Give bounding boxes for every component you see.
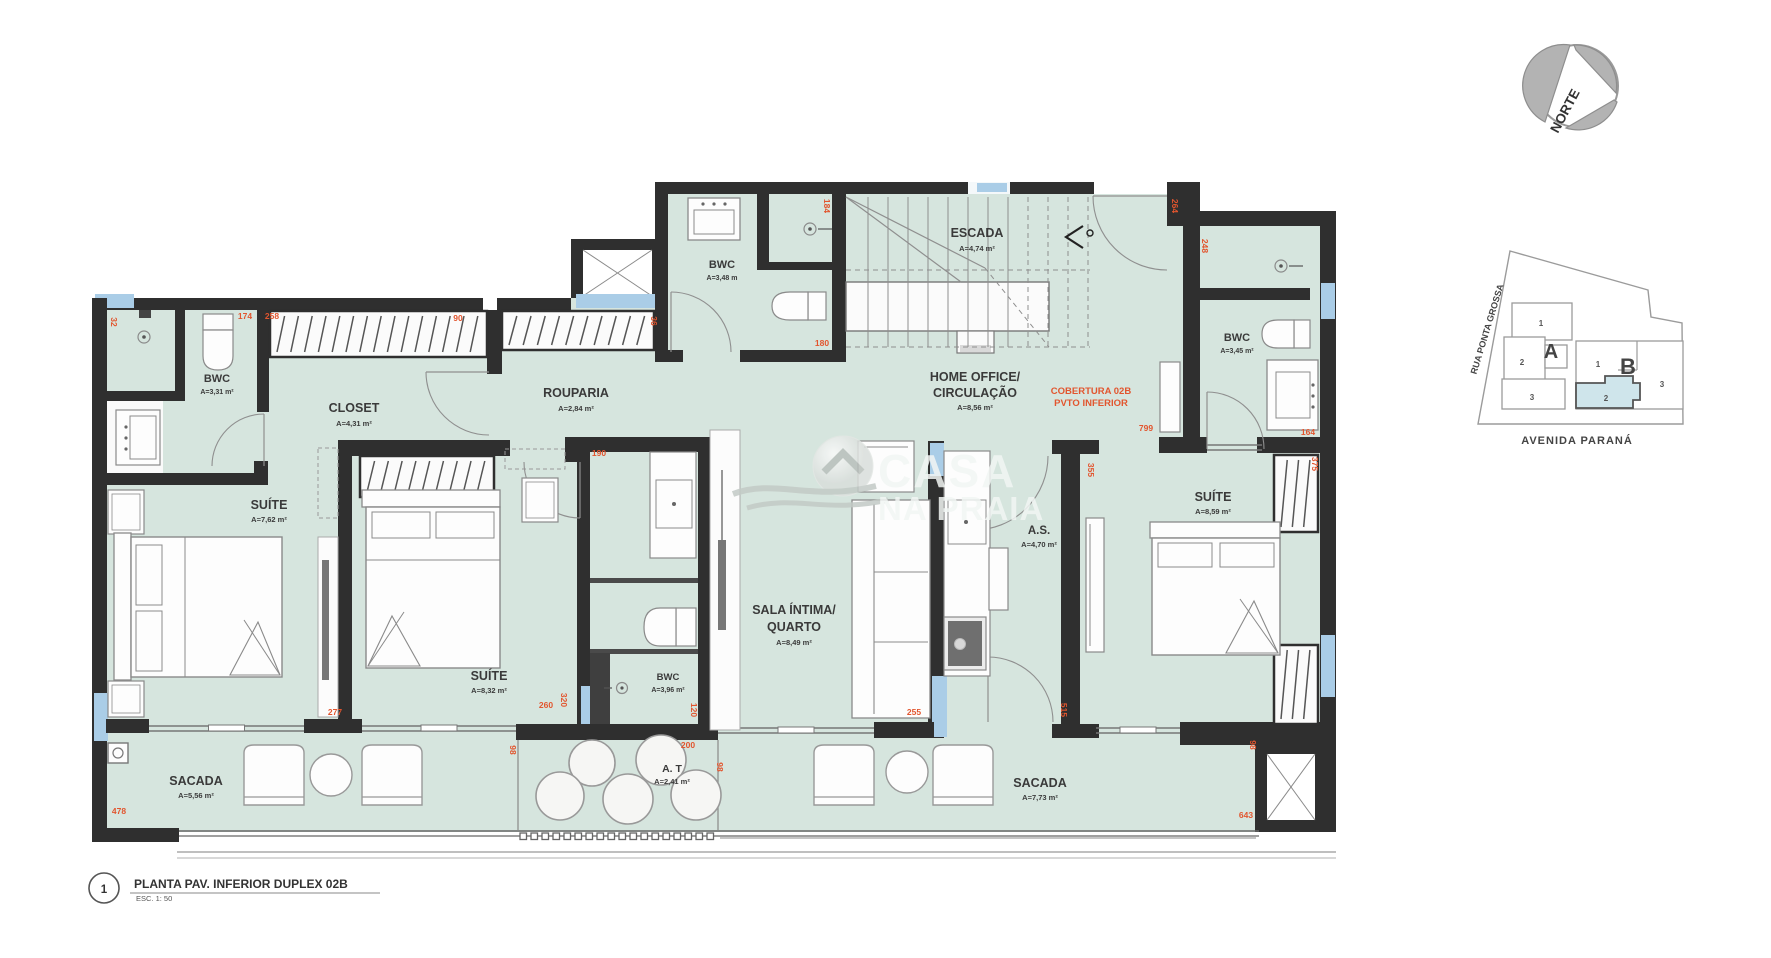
svg-text:SUÍTE: SUÍTE xyxy=(471,668,508,683)
svg-text:1: 1 xyxy=(101,884,108,896)
svg-text:255: 255 xyxy=(907,707,921,717)
svg-text:98: 98 xyxy=(508,745,518,755)
svg-text:ESC. 1: 50: ESC. 1: 50 xyxy=(136,894,172,903)
svg-text:QUARTO: QUARTO xyxy=(767,620,821,634)
svg-text:A=5,56 m²: A=5,56 m² xyxy=(178,791,214,800)
svg-text:90: 90 xyxy=(453,313,463,323)
svg-text:643: 643 xyxy=(1239,810,1253,820)
svg-text:3: 3 xyxy=(1660,380,1665,389)
svg-text:120: 120 xyxy=(689,703,699,717)
svg-text:SUÍTE: SUÍTE xyxy=(251,497,288,512)
svg-text:515: 515 xyxy=(1059,703,1069,717)
svg-text:98: 98 xyxy=(1248,740,1258,750)
svg-text:164: 164 xyxy=(1301,427,1315,437)
svg-text:COBERTURA 02B: COBERTURA 02B xyxy=(1051,386,1132,397)
svg-text:36: 36 xyxy=(649,316,659,326)
svg-text:SALA ÍNTIMA/: SALA ÍNTIMA/ xyxy=(752,602,836,617)
svg-text:BWC: BWC xyxy=(1224,332,1250,344)
svg-text:260: 260 xyxy=(539,700,553,710)
svg-text:258: 258 xyxy=(265,311,279,321)
svg-text:ESCADA: ESCADA xyxy=(951,226,1004,240)
svg-text:174: 174 xyxy=(238,311,252,321)
svg-text:BWC: BWC xyxy=(204,373,230,385)
svg-text:A=7,73 m²: A=7,73 m² xyxy=(1022,793,1058,802)
svg-text:A=4,70 m²: A=4,70 m² xyxy=(1021,540,1057,549)
svg-text:98: 98 xyxy=(715,762,725,772)
svg-text:A=4,31 m²: A=4,31 m² xyxy=(336,419,372,428)
svg-text:1: 1 xyxy=(1539,319,1544,328)
svg-text:375: 375 xyxy=(1310,457,1320,471)
svg-text:3: 3 xyxy=(1530,393,1535,402)
svg-text:SACADA: SACADA xyxy=(169,774,222,788)
svg-text:A: A xyxy=(1544,341,1558,363)
svg-text:CLOSET: CLOSET xyxy=(329,401,380,415)
svg-text:A=2,84 m²: A=2,84 m² xyxy=(558,404,594,413)
svg-text:B: B xyxy=(1620,354,1636,379)
svg-text:180: 180 xyxy=(815,338,829,348)
svg-text:A=4,74 m²: A=4,74 m² xyxy=(959,244,995,253)
svg-text:355: 355 xyxy=(1086,463,1096,477)
svg-text:277: 277 xyxy=(328,707,342,717)
svg-text:ROUPARIA: ROUPARIA xyxy=(543,386,609,400)
svg-text:CIRCULAÇÃO: CIRCULAÇÃO xyxy=(933,385,1017,400)
svg-text:248: 248 xyxy=(1200,239,1210,253)
svg-text:A=8,56 m²: A=8,56 m² xyxy=(957,403,993,412)
svg-text:SACADA: SACADA xyxy=(1013,776,1066,790)
svg-text:1: 1 xyxy=(1596,360,1601,369)
svg-text:A=8,32 m²: A=8,32 m² xyxy=(471,686,507,695)
svg-text:2: 2 xyxy=(1520,358,1525,367)
svg-text:32: 32 xyxy=(109,317,119,327)
svg-text:PVTO INFERIOR: PVTO INFERIOR xyxy=(1054,398,1128,409)
svg-text:A=7,62 m²: A=7,62 m² xyxy=(251,515,287,524)
svg-text:200: 200 xyxy=(681,740,695,750)
svg-text:HOME OFFICE/: HOME OFFICE/ xyxy=(930,370,1021,384)
svg-text:A=3,48 m: A=3,48 m xyxy=(707,275,738,282)
svg-text:A=3,31 m²: A=3,31 m² xyxy=(200,389,234,396)
svg-text:478: 478 xyxy=(112,806,126,816)
svg-text:320: 320 xyxy=(559,693,569,707)
svg-text:A. T: A. T xyxy=(662,763,682,775)
svg-text:799: 799 xyxy=(1139,423,1153,433)
svg-text:264: 264 xyxy=(1170,199,1180,213)
svg-text:190: 190 xyxy=(592,448,606,458)
svg-text:PLANTA PAV. INFERIOR DUPLEX 02: PLANTA PAV. INFERIOR DUPLEX 02B xyxy=(134,877,348,891)
svg-text:2: 2 xyxy=(1604,394,1609,403)
svg-text:A=8,59 m²: A=8,59 m² xyxy=(1195,507,1231,516)
svg-text:A=8,49 m²: A=8,49 m² xyxy=(776,638,812,647)
svg-text:BWC: BWC xyxy=(657,672,680,683)
svg-text:A=2,41 m²: A=2,41 m² xyxy=(654,777,690,786)
svg-text:SUÍTE: SUÍTE xyxy=(1195,489,1232,504)
svg-text:A=3,45 m²: A=3,45 m² xyxy=(1220,348,1254,355)
svg-text:NA PRAIA: NA PRAIA xyxy=(878,490,1044,527)
svg-text:184: 184 xyxy=(822,199,832,213)
svg-text:BWC: BWC xyxy=(709,259,735,271)
svg-text:A=3,96 m²: A=3,96 m² xyxy=(651,687,685,694)
svg-text:AVENIDA PARANÁ: AVENIDA PARANÁ xyxy=(1521,434,1633,447)
